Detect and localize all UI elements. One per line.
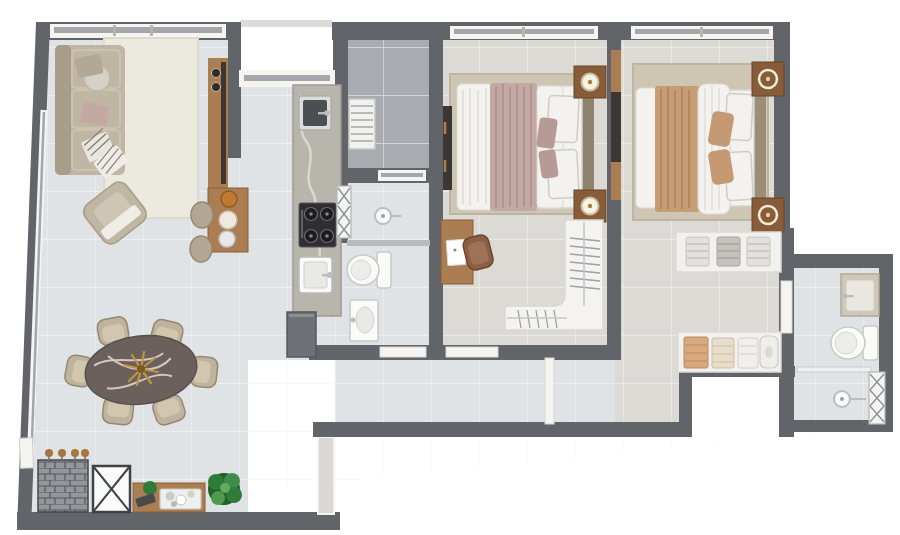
bedroom1-window	[450, 26, 598, 39]
wall-ladder	[337, 186, 351, 238]
nightstand	[752, 62, 784, 96]
bath1-door	[380, 347, 426, 357]
notch-top-right	[789, 0, 900, 256]
plate	[219, 231, 235, 247]
nightstand	[752, 198, 784, 232]
fruit-bowl	[221, 191, 237, 207]
bath1-bedroom1-wall	[429, 22, 443, 360]
shower-glass-partition	[797, 367, 871, 372]
media-panel	[208, 58, 228, 188]
master-bath-door	[781, 281, 792, 333]
bedroom-2-master	[611, 50, 784, 232]
wood-sideboard	[133, 481, 205, 512]
potted-plant	[208, 473, 242, 505]
vanity-washbasin	[841, 274, 879, 316]
bath1-glass-partition	[347, 240, 430, 246]
prep-sink	[299, 96, 331, 130]
floor-plan	[0, 0, 900, 535]
open-shelf-lower	[678, 332, 781, 372]
folded-cream	[712, 338, 734, 368]
master-bath-top-wall	[779, 254, 893, 268]
speaker-knob	[212, 83, 221, 92]
mauve-throw	[490, 83, 537, 211]
master-suite-door	[545, 358, 554, 424]
notch-left-wall	[679, 370, 692, 437]
living-top-window	[50, 24, 226, 38]
kitchen	[287, 85, 341, 357]
bedroom2-window	[631, 26, 773, 39]
speaker-knob	[212, 69, 221, 78]
nightstand	[574, 190, 606, 222]
drying-rack	[349, 99, 375, 149]
serving-tray	[160, 489, 201, 509]
bar-stool	[191, 202, 213, 228]
small-plant	[143, 481, 157, 495]
service-shaft	[93, 466, 130, 512]
folded-white	[738, 338, 758, 368]
l-shaped-sofa	[55, 45, 129, 179]
washbasin	[350, 300, 378, 341]
bedroom1-door	[446, 347, 498, 357]
bedroom2-bed	[636, 84, 766, 214]
bottom-wall-left	[17, 512, 340, 530]
bar-stool	[190, 236, 212, 262]
towel-ladder	[869, 372, 885, 424]
main-sink	[299, 257, 333, 293]
notch-top-center	[238, 0, 335, 76]
wall-wardrobe	[611, 50, 621, 200]
plate	[219, 211, 237, 229]
notch-trim	[240, 20, 332, 27]
open-shelf-upper	[676, 232, 781, 272]
tan-throw	[655, 86, 700, 212]
nightstand	[574, 66, 606, 98]
toilet	[831, 326, 878, 360]
cooktop	[299, 203, 336, 247]
living-kitchen-wall	[228, 22, 241, 158]
refrigerator-handle	[289, 314, 314, 317]
entry-door	[19, 438, 33, 468]
refrigerator	[287, 312, 316, 357]
hallway-bottom-wall	[313, 422, 692, 437]
service-window	[378, 170, 426, 181]
folded-clothes	[686, 237, 770, 266]
bedroom1-bed	[457, 82, 594, 212]
wall-wardrobe	[443, 106, 452, 190]
toilet	[347, 252, 391, 288]
floor-plan-canvas	[0, 0, 900, 535]
terrace-side-window-wall	[318, 437, 334, 514]
notch-bottom-right	[690, 376, 783, 440]
